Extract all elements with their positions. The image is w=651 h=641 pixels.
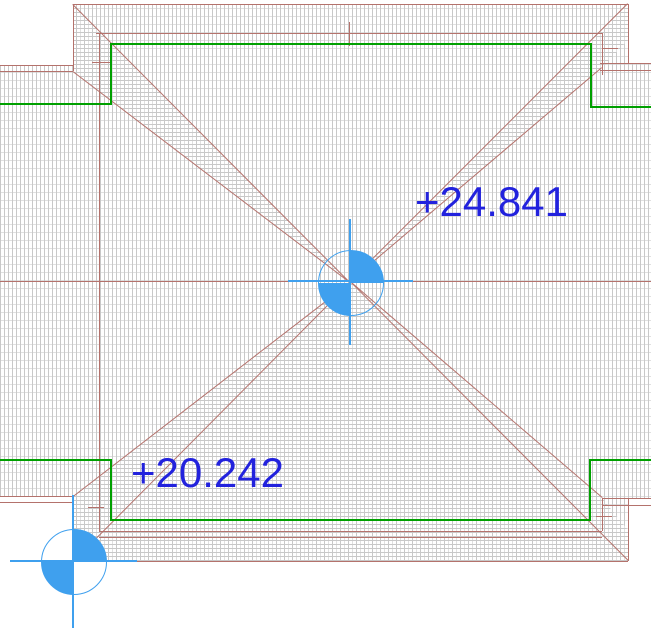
roof-hip-line [349, 3, 628, 282]
roof-edge-line [0, 502, 73, 503]
roof-hip-line [350, 281, 629, 561]
spot-elevation-icon[interactable] [41, 529, 107, 595]
roof-edge-line [0, 496, 73, 497]
roof-edge-line [96, 33, 602, 34]
roof-edge-line [602, 48, 618, 49]
roof-edge-line [602, 505, 651, 506]
roof-edge-line [99, 531, 602, 532]
boundary-line [110, 459, 112, 521]
boundary-line [590, 106, 651, 108]
boundary-line [110, 519, 589, 521]
roof-edge-line [73, 4, 74, 71]
roof-edge-line [628, 4, 629, 63]
roof-plan-canvas: +24.841 +20.242 [0, 0, 651, 641]
boundary-line [110, 43, 112, 105]
roof-edge-line [99, 537, 602, 538]
roof-hip-line [73, 282, 351, 562]
spot-elevation-icon[interactable] [318, 250, 384, 316]
roof-hip-line [350, 281, 603, 498]
roof-hip-line [72, 4, 350, 283]
roof-edge-line [596, 516, 612, 517]
lower-roof-elevation-label[interactable]: +20.242 [131, 452, 284, 494]
roof-edge-line [349, 22, 350, 46]
boundary-line [590, 43, 592, 108]
boundary-line [0, 103, 110, 105]
roof-edge-line [92, 62, 110, 63]
boundary-line [589, 459, 651, 461]
roof-edge-line [628, 498, 629, 561]
roof-edge-line [73, 4, 628, 5]
roof-edge-line [600, 63, 651, 64]
roof-edge-line [600, 70, 651, 71]
boundary-line [110, 43, 590, 45]
roof-edge-line [88, 507, 104, 508]
boundary-line [0, 459, 110, 461]
roof-edge-line [602, 498, 651, 499]
roof-edge-line [0, 71, 73, 72]
roof-edge-line [0, 65, 73, 66]
roof-edge-line [602, 498, 603, 531]
upper-roof-elevation-label[interactable]: +24.841 [415, 181, 568, 223]
roof-hip-line [72, 71, 350, 283]
roof-edge-line [99, 33, 100, 531]
roof-edge-line [73, 561, 628, 562]
boundary-line [589, 459, 591, 521]
roof-hip-line [349, 67, 602, 282]
roof-edge-line [602, 33, 603, 75]
